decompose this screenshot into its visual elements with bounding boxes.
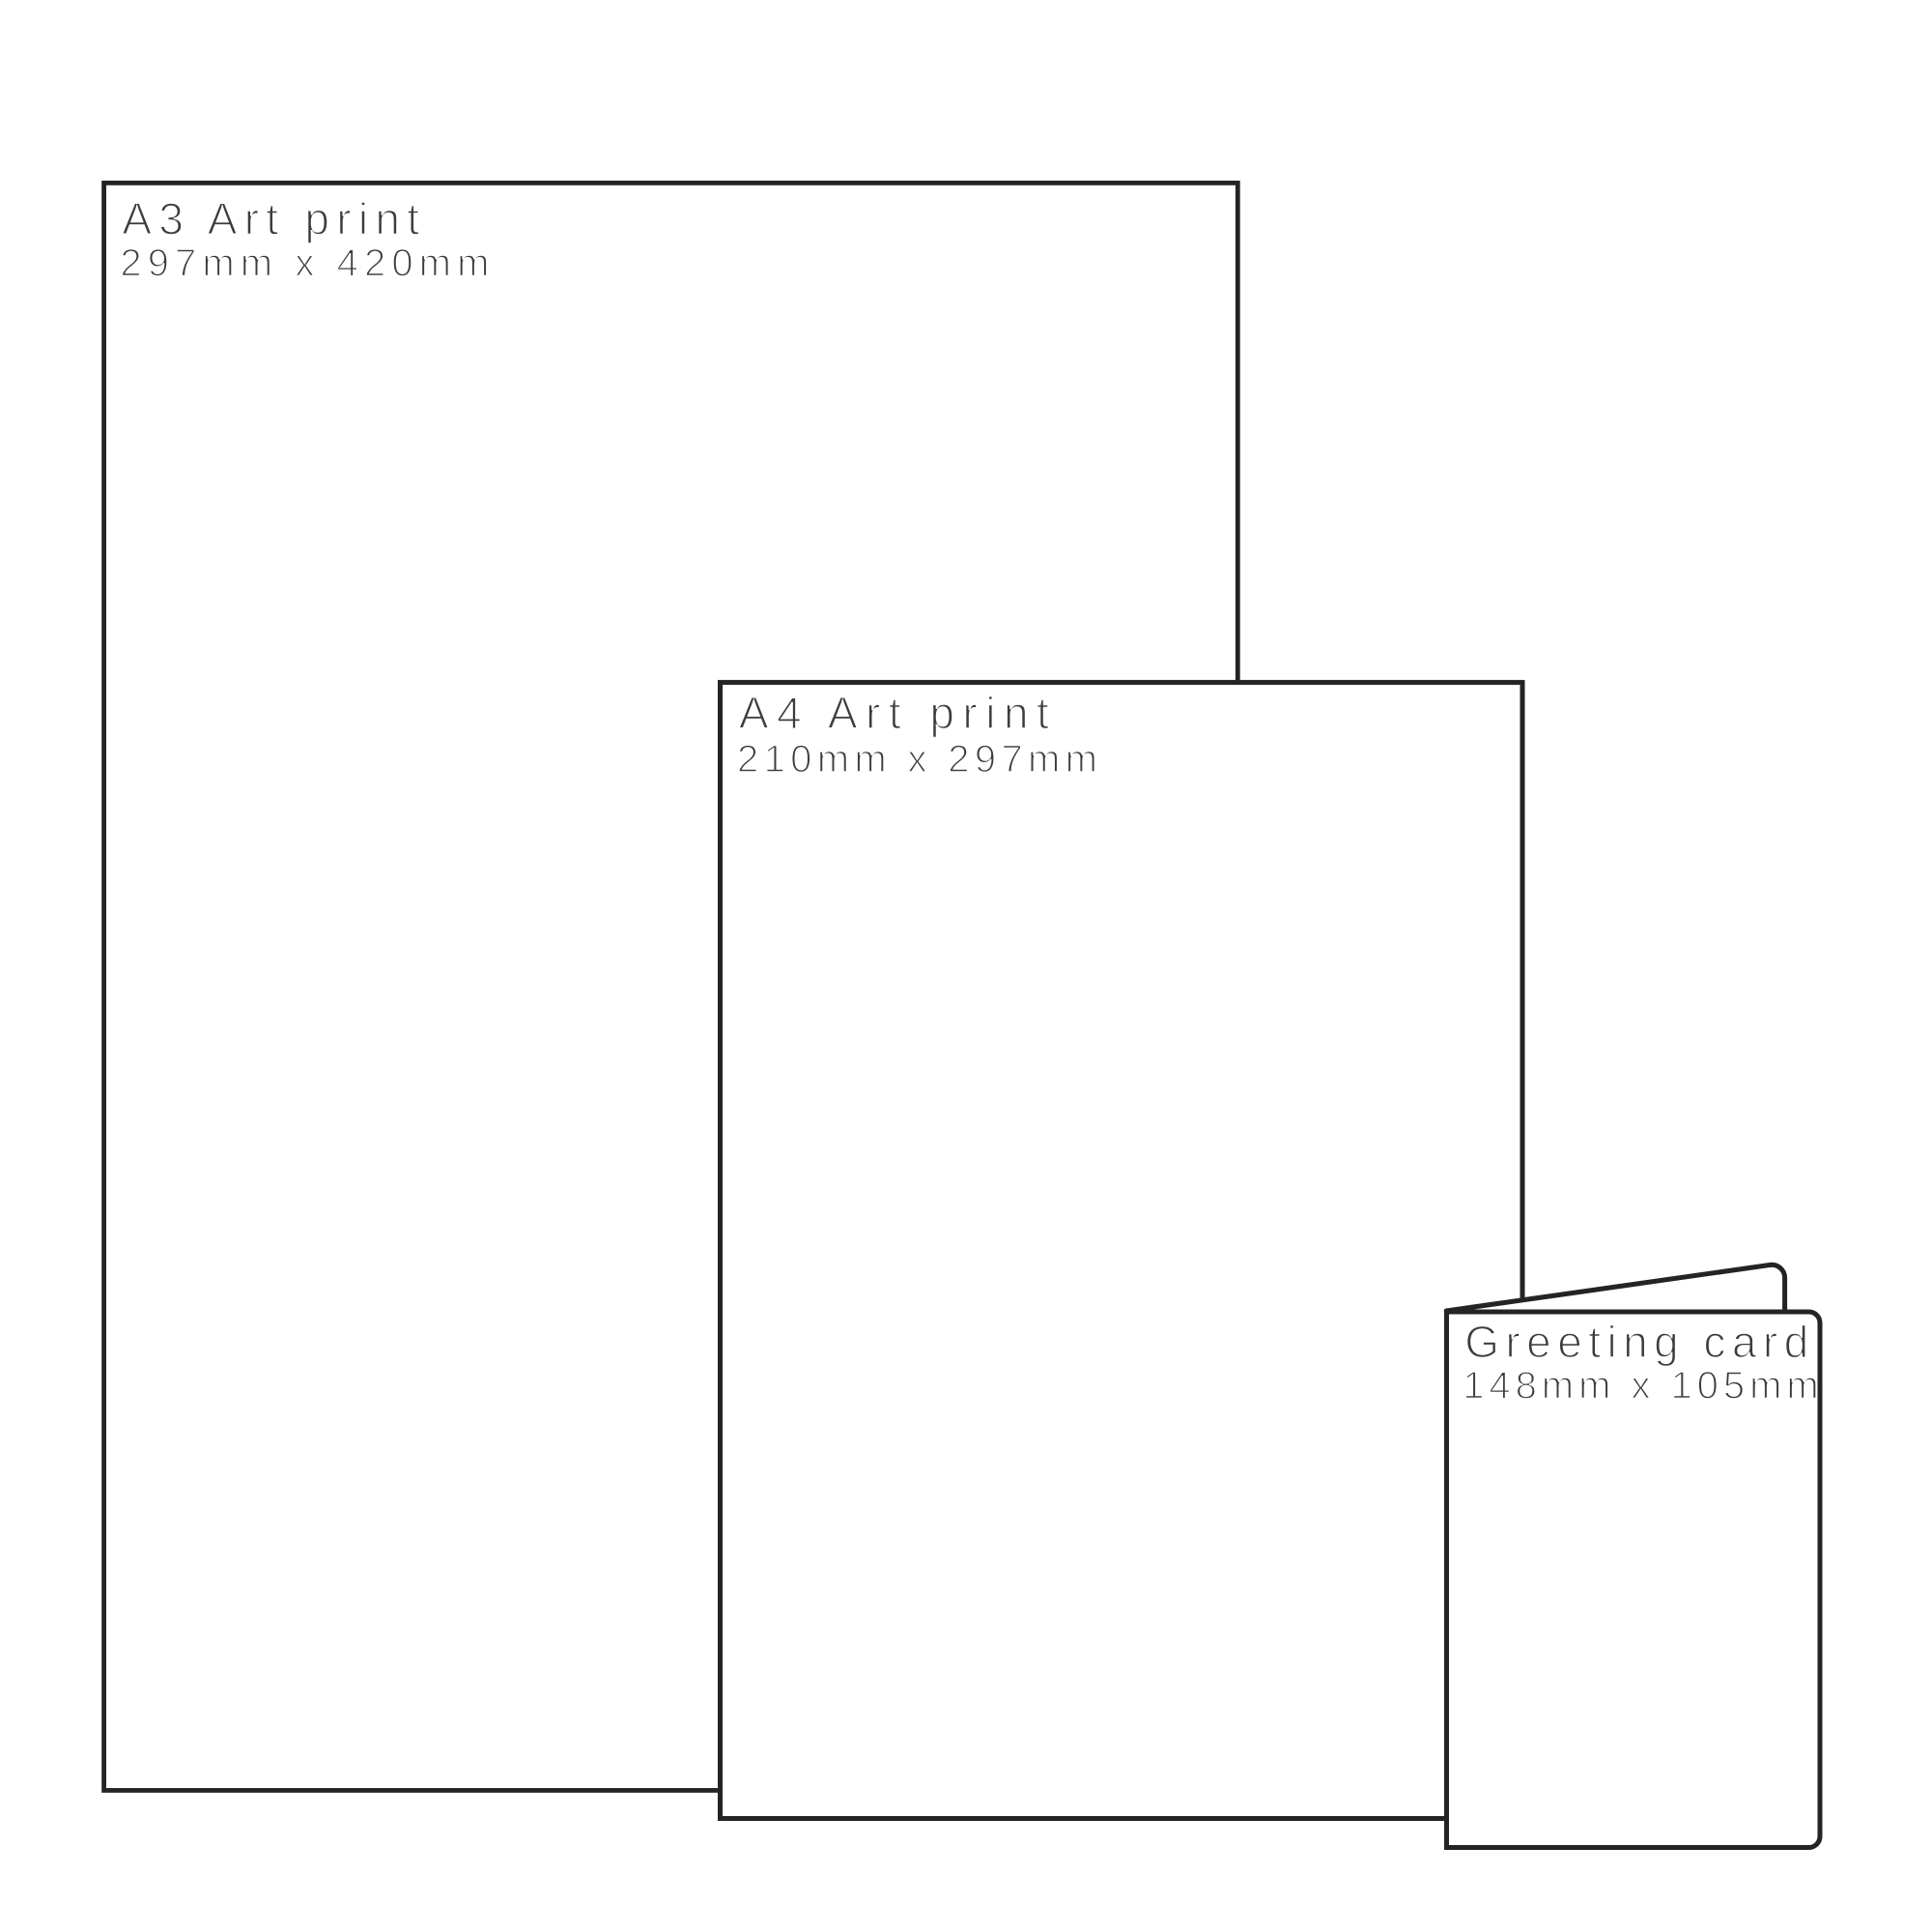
svg-text:297mm x 420mm: 297mm x 420mm: [120, 242, 489, 285]
svg-text:A3 Art print: A3 Art print: [122, 194, 419, 244]
svg-text:148mm x 105mm: 148mm x 105mm: [1463, 1364, 1819, 1406]
svg-text:210mm x 297mm: 210mm x 297mm: [737, 738, 1097, 781]
